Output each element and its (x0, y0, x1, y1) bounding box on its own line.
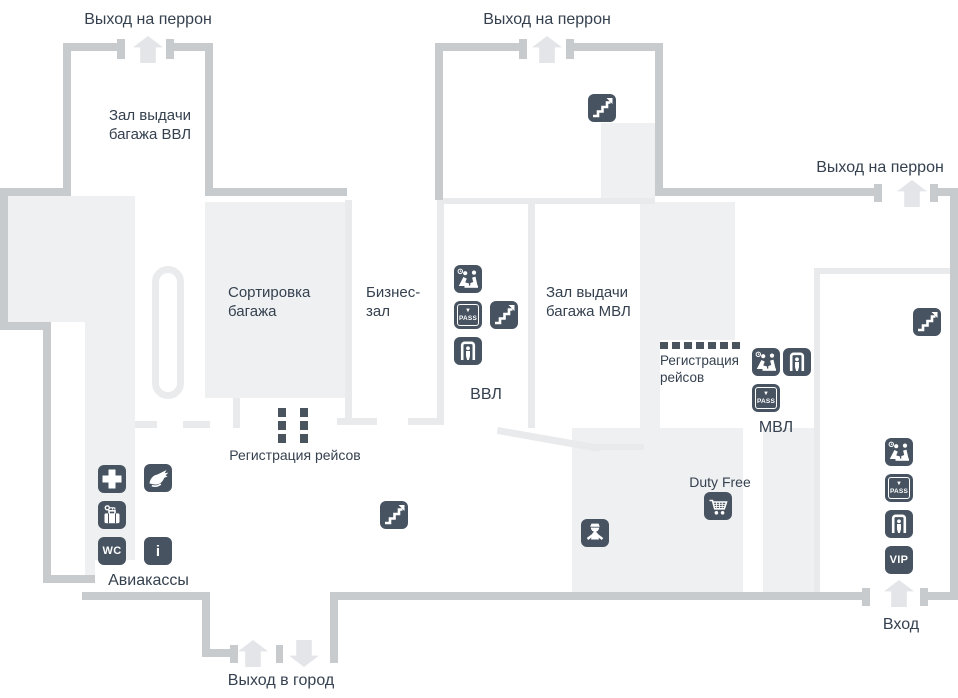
wall (43, 322, 51, 583)
customs-control-icon (885, 438, 913, 466)
pass-label: PASS (757, 398, 775, 405)
checkin-label-right: Регистрация рейсов (660, 352, 739, 386)
wall (202, 592, 210, 657)
wc-icon: WC (98, 537, 126, 565)
checkin-counter-dash (300, 408, 308, 417)
checkin-label-center: Регистрация рейсов (215, 446, 375, 465)
wall (117, 39, 125, 59)
checkin-counter-dash (300, 434, 308, 443)
ticket-office-label: Авиакассы (95, 571, 202, 590)
zone-mvl-south (763, 428, 814, 592)
baggage-carousel (152, 266, 184, 399)
wall (0, 188, 71, 196)
inner-wall (443, 198, 655, 204)
terminal-floor-plan: ▼PASS ▼PASS ▼PASS VIP WC i Выход на перр… (0, 0, 958, 698)
checkin-counter-dash (660, 342, 668, 349)
inner-wall (598, 444, 644, 450)
luggage-storage-icon (98, 501, 126, 529)
zone-slim-strip (640, 340, 660, 430)
checkin-counter-dash (708, 342, 716, 349)
checkin-counter-dash (278, 421, 286, 430)
wall (63, 43, 122, 51)
wc-label: WC (103, 545, 122, 557)
wall (330, 592, 870, 600)
police-post-icon (581, 519, 609, 547)
baggage-claim-vvl-label: Зал выдачи багажа ВВЛ (70, 106, 230, 144)
zone-northeast-block (640, 202, 735, 340)
vip-lounge-icon: VIP (885, 546, 913, 574)
wall (862, 588, 870, 606)
wall (230, 645, 238, 663)
duty-free-label: Duty Free (670, 473, 770, 492)
wall (435, 43, 525, 51)
stairs-icon (588, 94, 616, 122)
wall (874, 184, 882, 202)
inner-wall (814, 268, 950, 274)
inner-wall (337, 418, 377, 425)
wall (43, 575, 95, 583)
mvl-zone-label: МВЛ (746, 418, 806, 437)
entrance-label: Вход (861, 615, 941, 634)
vip-label: VIP (890, 554, 909, 566)
inner-wall (135, 421, 157, 428)
wall (0, 188, 8, 330)
wall (655, 43, 663, 196)
wall (655, 188, 881, 196)
info-label: i (156, 543, 160, 560)
customs-control-icon (454, 265, 482, 293)
business-lounge-label: Бизнес- зал (366, 283, 420, 321)
inner-wall (233, 398, 240, 428)
checkin-counter-dash (696, 342, 704, 349)
checkin-counter-dash (684, 342, 692, 349)
stairs-icon (380, 501, 408, 529)
wall (82, 592, 210, 600)
pass-control-icon: ▼PASS (454, 301, 482, 329)
wall (936, 188, 958, 196)
door-arrow-up-icon (532, 36, 562, 63)
checkin-counter-dash (278, 408, 286, 417)
inner-wall (345, 200, 352, 420)
door-arrow-down-icon (289, 640, 319, 667)
vvl-zone-label: ВВЛ (456, 385, 516, 404)
security-screening-icon (454, 337, 482, 365)
checkin-counter-dash (300, 421, 308, 430)
checkin-counter-dash (720, 342, 728, 349)
exit-platform-label: Выход на перрон (800, 158, 958, 177)
zone-left-wing (8, 196, 93, 322)
duty-free-shop-icon (704, 492, 732, 520)
door-arrow-up-icon (133, 36, 163, 63)
pass-control-icon: ▼PASS (885, 474, 913, 502)
checkin-counter-dash (278, 434, 286, 443)
stairs-icon (490, 301, 518, 329)
exit-platform-label: Выход на перрон (60, 10, 236, 29)
pass-label: PASS (890, 488, 908, 495)
security-screening-icon (885, 510, 913, 538)
wall (571, 43, 663, 51)
zone-top-middle (601, 123, 655, 198)
wall (519, 39, 527, 59)
stairs-icon (913, 308, 941, 336)
first-aid-icon (98, 465, 126, 493)
wall (276, 645, 283, 663)
pass-control-icon: ▼PASS (752, 384, 780, 412)
inner-wall (814, 268, 820, 592)
baggage-claim-mvl-label: Зал выдачи багажа МВЛ (546, 283, 631, 321)
inner-wall (437, 200, 444, 420)
pass-arrow-glyph: ▼ (763, 391, 769, 398)
wall (435, 43, 443, 200)
door-arrow-up-icon (897, 180, 927, 207)
exit-platform-label: Выход на перрон (467, 10, 627, 29)
inner-wall (408, 418, 444, 425)
customs-control-icon (752, 348, 780, 376)
pass-label: PASS (459, 315, 477, 322)
wall (920, 588, 928, 606)
baggage-sorting-label: Сортировка багажа (228, 283, 310, 321)
door-arrow-up-icon (238, 640, 268, 667)
wall (950, 188, 958, 600)
hand-service-icon (144, 464, 172, 492)
door-arrow-up-icon (884, 580, 914, 607)
wall (205, 188, 347, 196)
checkin-counter-dash (672, 342, 680, 349)
exit-city-label: Выход в город (201, 671, 361, 690)
wall (330, 592, 338, 653)
checkin-counter-dash (732, 342, 740, 349)
inner-wall (528, 200, 535, 428)
pass-arrow-glyph: ▼ (896, 481, 902, 488)
pass-arrow-glyph: ▼ (465, 308, 471, 315)
info-icon: i (144, 537, 172, 565)
inner-wall (183, 421, 210, 428)
security-screening-icon (783, 348, 811, 376)
